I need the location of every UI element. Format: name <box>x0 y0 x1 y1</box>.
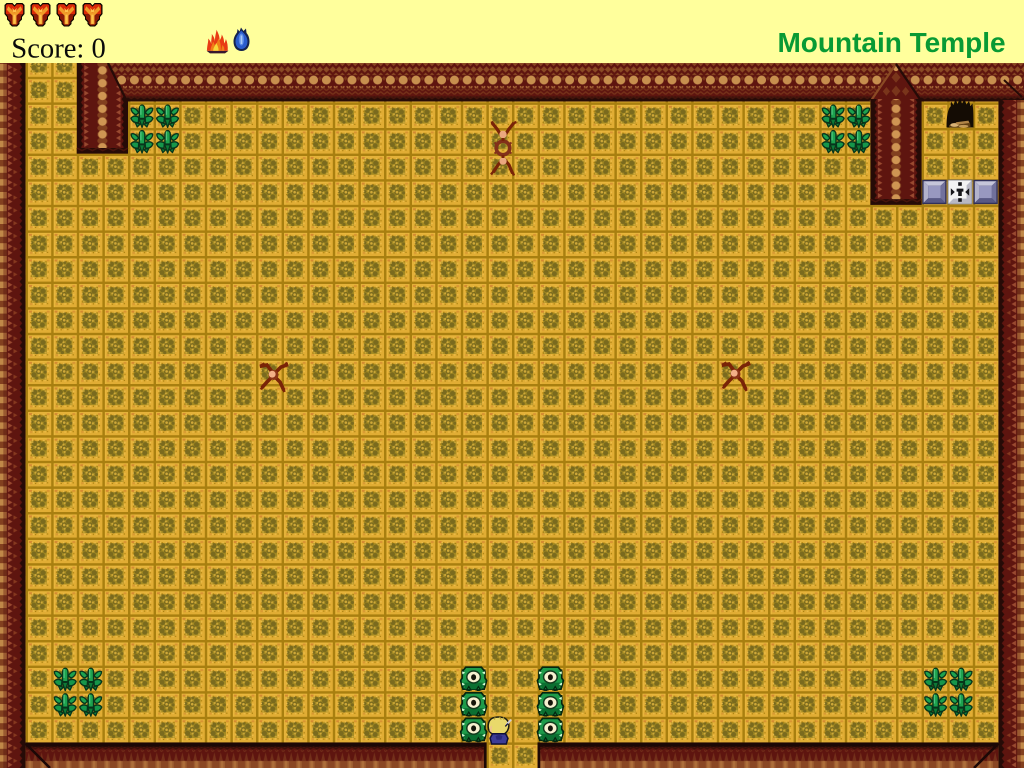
svg-text:Score: 0: Score: 0 <box>11 34 106 65</box>
svg-text:Mountain Temple: Mountain Temple <box>777 27 1005 58</box>
